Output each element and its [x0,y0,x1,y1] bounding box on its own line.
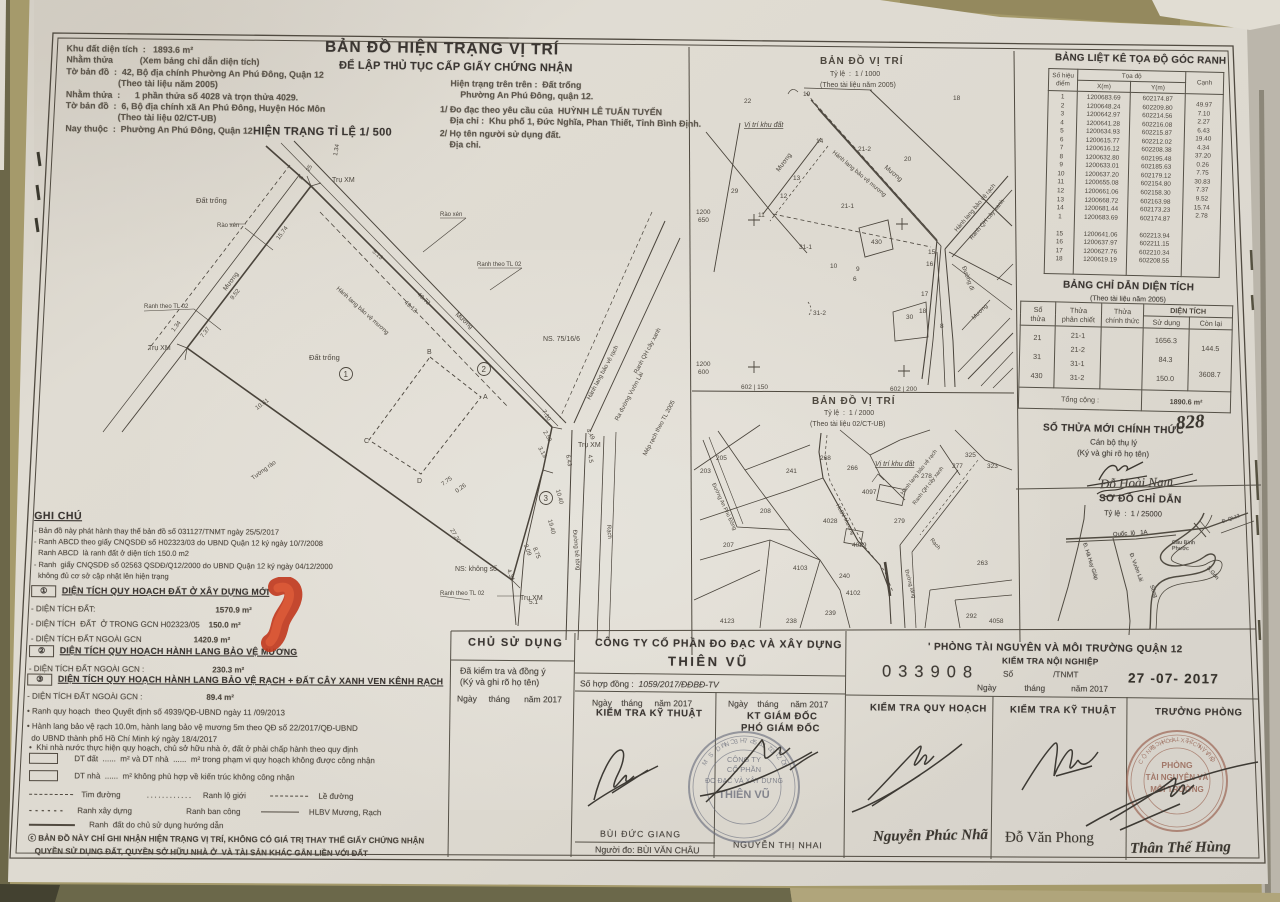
svg-text:2: 2 [1184,736,1189,743]
svg-text:P: P [750,736,755,744]
svg-text:P: P [1169,735,1174,742]
svg-text:X: X [1180,738,1185,745]
svg-text:CỔ PHẦN: CỔ PHẦN [727,764,761,774]
svg-text:T: T [1176,735,1180,741]
svg-text:M: M [701,759,710,767]
svg-text:S: S [707,751,716,759]
svg-text:C: C [729,737,736,745]
svg-text:H: H [740,736,745,743]
svg-text:PHÒNG: PHÒNG [1161,759,1193,770]
